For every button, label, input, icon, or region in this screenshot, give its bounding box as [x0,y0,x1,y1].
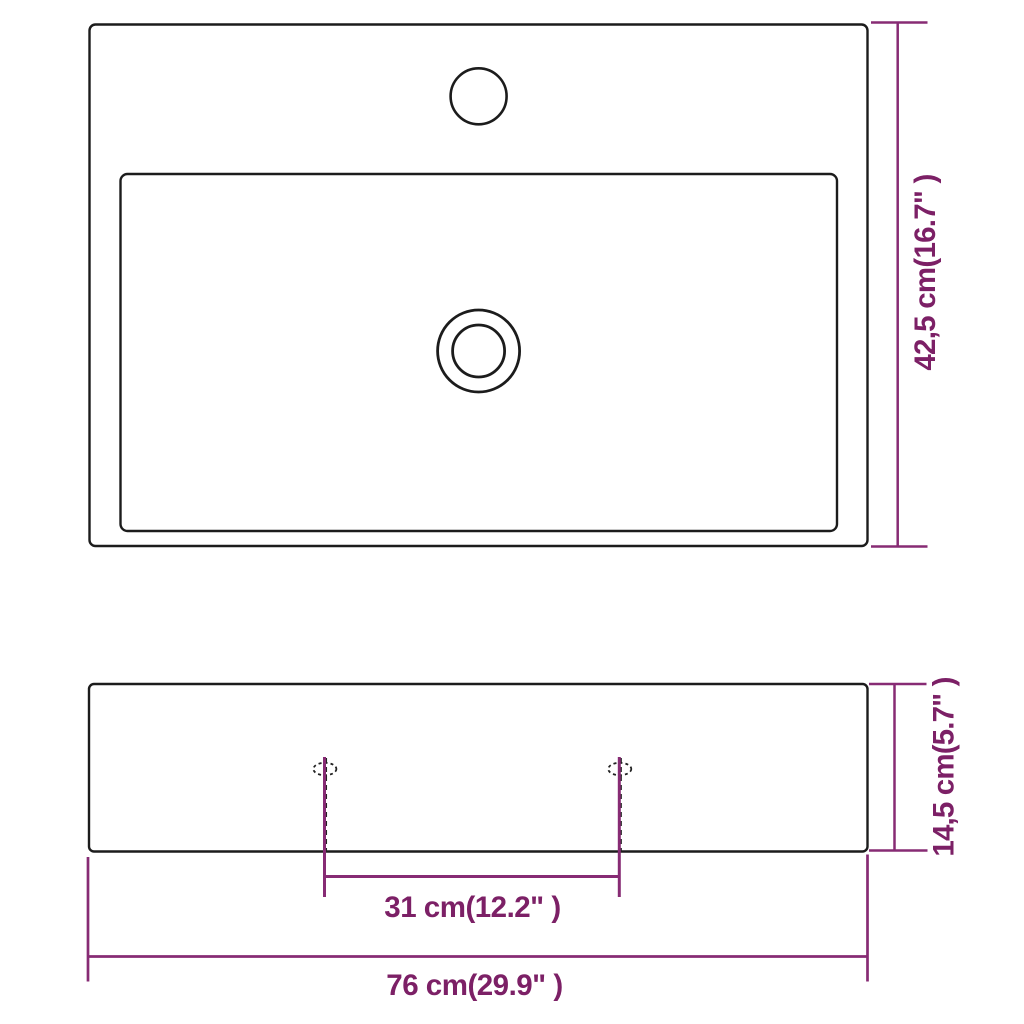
svg-text:42,5 cm(16.7" ): 42,5 cm(16.7" ) [909,174,942,370]
svg-text:76 cm(29.9" ): 76 cm(29.9" ) [386,969,562,1002]
svg-text:31 cm(12.2" ): 31 cm(12.2" ) [384,891,560,924]
svg-text:14,5 cm(5.7" ): 14,5 cm(5.7" ) [928,677,961,856]
